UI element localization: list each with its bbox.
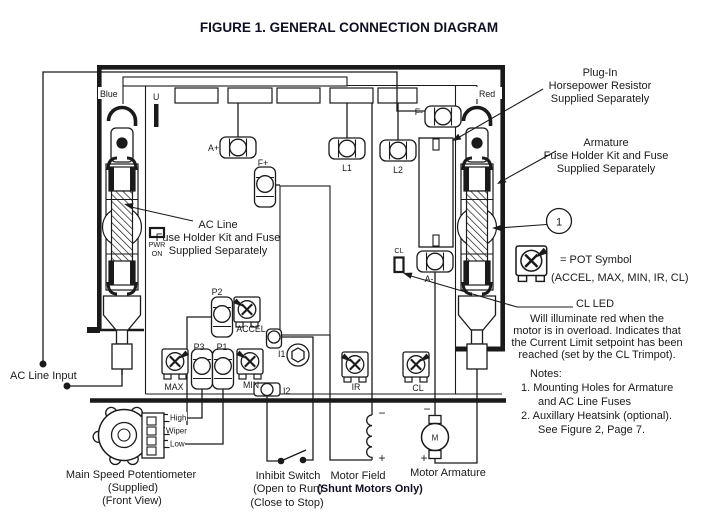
pot-legend-line2: (ACCEL, MAX, MIN, IR, CL) <box>551 272 689 284</box>
pot-legend-symbol <box>516 246 548 281</box>
motor-letter: M <box>432 434 439 443</box>
armature-cap: Motor Armature <box>410 467 486 479</box>
terminal-l1 <box>329 138 365 159</box>
ac-wire-end-dot <box>40 361 47 368</box>
trimpot-max <box>162 349 189 379</box>
af-line1: Armature <box>583 137 628 149</box>
pin-wiper: Wiper <box>166 427 187 436</box>
u-label: U <box>153 92 159 102</box>
cl-led-line4: reached (set by the CL Trimpot). <box>518 349 675 361</box>
label-a-minus: A- <box>425 274 434 284</box>
inhibit-cap3: (Close to Stop) <box>250 497 323 509</box>
label-p3: P3 <box>194 342 205 352</box>
terminal-p2 <box>212 297 233 337</box>
left-border-step <box>87 327 100 333</box>
inhibit-switch <box>278 450 307 464</box>
armature-minus: − <box>423 402 430 416</box>
figure-title: FIGURE 1. GENERAL CONNECTION DIAGRAM <box>200 20 498 35</box>
ac-wire-end-dot2 <box>64 383 71 390</box>
label-i1: I1 <box>278 349 285 359</box>
label-accel: ACCEL <box>236 324 265 334</box>
label-cl-pot: CL <box>412 383 423 393</box>
cl-led-arrow <box>403 273 413 279</box>
hex-standoff <box>287 344 309 366</box>
inhibit-caption: Inhibit Switch (Open to Run) (Close to S… <box>250 470 323 509</box>
field-minus: − <box>378 406 385 420</box>
label-min: MIN <box>243 380 259 390</box>
note2-line1: 2. Auxillary Heatsink (optional). <box>521 410 672 422</box>
label-i2: I2 <box>283 386 290 396</box>
terminal-a-minus <box>417 251 453 272</box>
main-pot-cap1: Main Speed Potentiometer <box>66 469 197 481</box>
hp-line1: Plug-In <box>583 67 618 79</box>
cl-led-board-label: CL <box>394 246 403 255</box>
main-pot-caption: Main Speed Potentiometer (Supplied) (Fro… <box>66 469 197 507</box>
top-slot-strip <box>123 77 347 86</box>
label-max: MAX <box>164 382 183 392</box>
trimpot-ir <box>341 352 368 382</box>
field-coil <box>367 415 372 460</box>
pin-low: Low <box>170 440 185 449</box>
cl-led-heading: CL LED <box>576 298 614 310</box>
trimpot-cl <box>403 352 430 382</box>
connector-finger-row <box>175 88 417 103</box>
af-line2: Fuse Holder Kit and Fuse <box>544 150 669 162</box>
ac-fuse-line3: Supplied Separately <box>169 245 268 257</box>
connection-diagram: M 1 FIGURE 1. GENERAL CONNECTION DIAGRAM… <box>0 0 703 523</box>
figure-canvas: M 1 FIGURE 1. GENERAL CONNECTION DIAGRAM… <box>0 0 703 523</box>
blue-lead-label: Blue <box>100 89 118 99</box>
hp-line2: Horsepower Resistor <box>549 80 652 92</box>
hp-resistor-callout: Plug-In Horsepower Resistor Supplied Sep… <box>549 67 652 105</box>
ac-line-fuse-callout: AC Line Fuse Holder Kit and Fuse Supplie… <box>156 219 281 257</box>
u-jumper <box>154 104 159 127</box>
heatsink-outline <box>280 186 330 335</box>
hp-line3: Supplied Separately <box>551 93 650 105</box>
trimpot-min <box>236 349 263 379</box>
pot-symbol-legend: = POT Symbol (ACCEL, MAX, MIN, IR, CL) <box>551 254 689 284</box>
ac-line-input-label: AC Line Input <box>10 370 77 382</box>
label-f-minus: F- <box>415 107 423 117</box>
callout-leaders <box>124 89 573 307</box>
on-label: ON <box>152 249 163 258</box>
terminal-l2 <box>380 140 416 161</box>
field-cap: Motor Field <box>330 470 385 482</box>
terminal-f-plus <box>255 167 276 207</box>
main-pot-cap3: (Front View) <box>102 495 162 507</box>
main-pot-cap2: (Supplied) <box>108 482 158 494</box>
notes-heading: Notes: <box>530 368 562 380</box>
pot-legend-line1: = POT Symbol <box>560 254 632 266</box>
ac-fuse-line1: AC Line <box>198 219 237 231</box>
cl-led <box>395 258 404 273</box>
label-a-plus: A+ <box>208 143 219 153</box>
horsepower-resistor <box>419 138 453 247</box>
cl-led-line1: Will illuminate red when the <box>530 313 664 325</box>
armature-plus: + <box>420 451 427 465</box>
note-ref-number: 1 <box>556 217 562 229</box>
field-plus: + <box>378 451 385 465</box>
armature-fuse-assembly <box>458 108 497 370</box>
trimpot-accel <box>233 297 260 327</box>
red-lead-label: Red <box>479 89 495 99</box>
note1-line1: 1. Mounting Holes for Armature <box>521 382 673 394</box>
cl-led-line3: the Current Limit setpoint has been <box>511 337 682 349</box>
field-subcap: (Shunt Motors Only) <box>317 483 423 495</box>
terminal-p3 <box>192 349 213 389</box>
notes-block: Notes: 1. Mounting Holes for Armature an… <box>521 368 673 436</box>
wiring <box>40 72 478 463</box>
pot-pin-labels: High Wiper Low <box>165 412 188 449</box>
note2-line2: See Figure 2, Page 7. <box>538 424 645 436</box>
pin-high: High <box>170 414 186 423</box>
motor-field-caption: Motor Field (Shunt Motors Only) − + <box>317 406 423 495</box>
armature-fuse-callout: Armature Fuse Holder Kit and Fuse Suppli… <box>544 137 669 175</box>
label-l1: L1 <box>342 163 352 173</box>
inhibit-cap2: (Open to Run) <box>253 483 323 495</box>
note1-line2: and AC Line Fuses <box>538 396 631 408</box>
inhibit-wire-left <box>267 395 278 461</box>
terminal-p1 <box>213 349 234 389</box>
ac-fuse-line2: Fuse Holder Kit and Fuse <box>156 232 281 244</box>
note-ref-circle: 1 <box>547 209 572 234</box>
label-p2: P2 <box>212 287 223 297</box>
af-line3: Supplied Separately <box>557 163 656 175</box>
terminal-f-minus <box>425 106 461 127</box>
label-l2: L2 <box>393 165 403 175</box>
label-p1: P1 <box>217 342 228 352</box>
terminal-i1 <box>267 329 282 348</box>
label-ir: IR <box>352 382 361 392</box>
main-speed-potentiometer <box>93 407 169 464</box>
cl-led-line2: motor is in overload. Indicates that <box>513 325 681 337</box>
terminal-a-plus <box>220 137 256 158</box>
label-f-plus: F+ <box>258 158 269 168</box>
inhibit-cap1: Inhibit Switch <box>256 470 321 482</box>
